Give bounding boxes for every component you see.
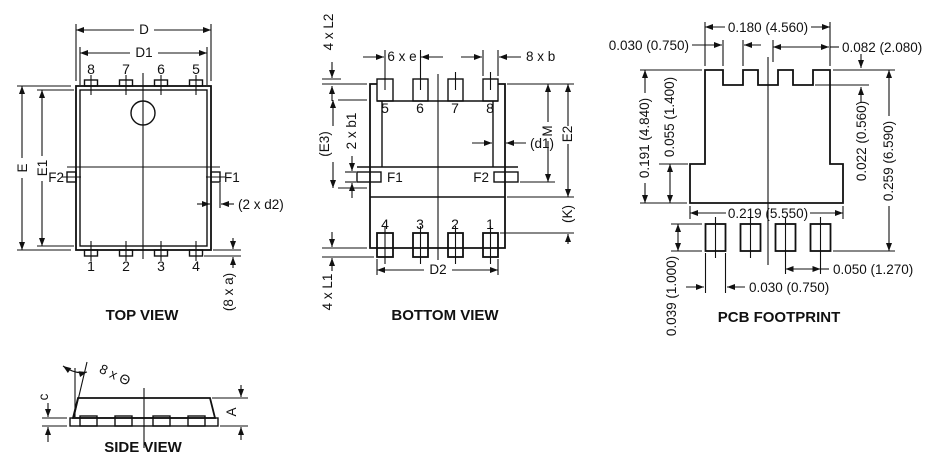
dim-label-c: c: [36, 393, 51, 400]
dim-label-4xl1: 4 x L1: [320, 274, 335, 311]
drawing-svg: D D1 E E1 8 7 6 5 1 2 3 4 F2 F1 (2 x d2)…: [0, 0, 946, 473]
pcb-footprint-title: PCB FOOTPRINT: [718, 309, 841, 326]
dim-label-tab-height: 0.055 (1.400): [662, 77, 677, 157]
dim-label-2xd2: (2 x d2): [238, 197, 284, 212]
pin-number: 5: [192, 61, 200, 77]
side-view-dimension-lines: [42, 362, 248, 448]
dim-label-pad-height: 0.191 (4.840): [637, 98, 652, 178]
pin-number: 3: [416, 216, 424, 232]
package-outline-drawing: D D1 E E1 8 7 6 5 1 2 3 4 F2 F1 (2 x d2)…: [0, 0, 946, 473]
dim-label-d1: (d1): [530, 136, 554, 151]
pin-number: 7: [122, 61, 130, 77]
footprint-main-pad: [690, 70, 843, 203]
dim-label-angle: 8 x Θ: [97, 361, 133, 388]
pin-number: 2: [451, 216, 459, 232]
pin-number: 1: [87, 258, 95, 274]
bottom-view-title: BOTTOM VIEW: [391, 307, 499, 324]
dim-label-d: D: [139, 22, 149, 37]
label-f2: F2: [473, 170, 489, 185]
pin-number: 4: [192, 258, 200, 274]
pin-number: 8: [87, 61, 95, 77]
dim-label-right-offset: 0.082 (2.080): [842, 40, 922, 55]
label-f2: F2: [48, 170, 64, 185]
top-view-title: TOP VIEW: [106, 307, 180, 324]
label-f1: F1: [224, 170, 240, 185]
side-view-title: SIDE VIEW: [104, 439, 182, 456]
dim-label-4xl2: 4 x L2: [321, 14, 336, 51]
pin-number: 7: [451, 100, 459, 116]
top-view: D D1 E E1 8 7 6 5 1 2 3 4 F2 F1 (2 x d2)…: [15, 22, 284, 324]
dim-label-pad-top-width: 0.180 (4.560): [728, 20, 808, 35]
dim-label-8xa: (8 x a): [221, 273, 236, 311]
label-f1: F1: [387, 170, 403, 185]
dim-label-6xe: 6 x e: [387, 49, 416, 64]
dim-label-tab-width: 0.219 (5.550): [728, 206, 808, 221]
dim-label-e: E: [15, 163, 30, 172]
dim-label-lead-pad-width: 0.030 (0.750): [749, 280, 829, 295]
pin-number: 6: [416, 100, 424, 116]
pin-number: 2: [122, 258, 130, 274]
pcb-footprint: 0.180 (4.560) 0.030 (0.750) 0.082 (2.080…: [609, 20, 923, 336]
pin-number: 4: [381, 216, 389, 232]
dim-label-a: A: [224, 407, 239, 416]
dim-label-m: M: [540, 125, 555, 136]
dim-label-8xb: 8 x b: [526, 49, 555, 64]
pin-number: 6: [157, 61, 165, 77]
dim-label-notch-depth: 0.022 (0.560): [854, 101, 869, 181]
dim-label-2xb1: 2 x b1: [344, 113, 359, 150]
dim-label-total-height: 0.259 (6.590): [881, 121, 896, 201]
dim-label-d1: D1: [135, 45, 152, 60]
dim-label-e3: (E3): [317, 131, 332, 157]
dim-label-e2: E2: [560, 126, 575, 143]
pin-number: 5: [381, 100, 389, 116]
pin-number: 1: [486, 216, 494, 232]
pin-number: 3: [157, 258, 165, 274]
pin-number: 8: [486, 100, 494, 116]
dim-label-lead-pitch: 0.050 (1.270): [833, 262, 913, 277]
dim-label-notch-width: 0.030 (0.750): [609, 38, 689, 53]
dim-label-k: (K): [560, 205, 575, 223]
dim-label-lead-pad-height: 0.039 (1.000): [664, 256, 679, 336]
side-view: 8 x Θ c A SIDE VIEW: [36, 361, 248, 456]
bottom-view: 4 x L2 6 x e 8 x b 5 6 7 8 4 3 2 1 (E3) …: [317, 14, 575, 324]
dim-label-d2: D2: [429, 262, 446, 277]
